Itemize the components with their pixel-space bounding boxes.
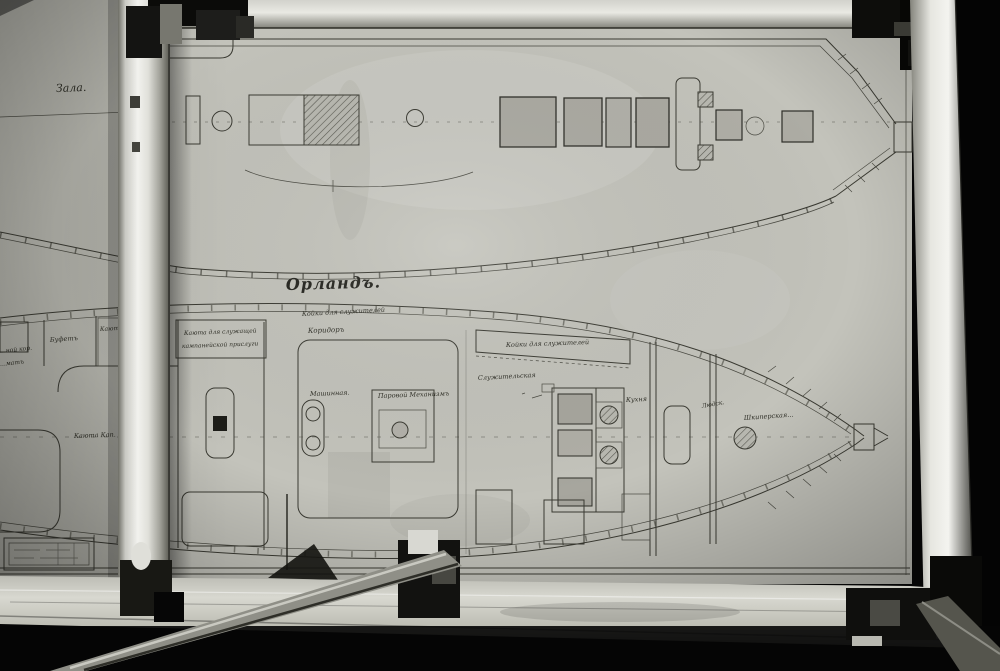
frame-top-bar (150, 0, 890, 28)
frame-left-bar (108, 0, 192, 622)
photo-of-framed-ship-plan: Зала. Орландъ. (0, 0, 1000, 671)
